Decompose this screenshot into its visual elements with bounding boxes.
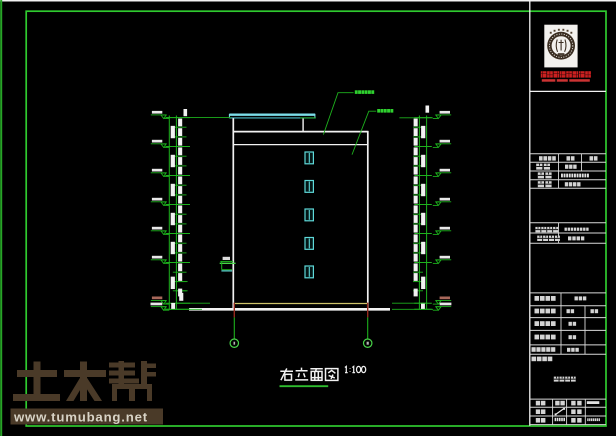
svg-text:www.tumubang.net: www.tumubang.net <box>13 409 148 424</box>
